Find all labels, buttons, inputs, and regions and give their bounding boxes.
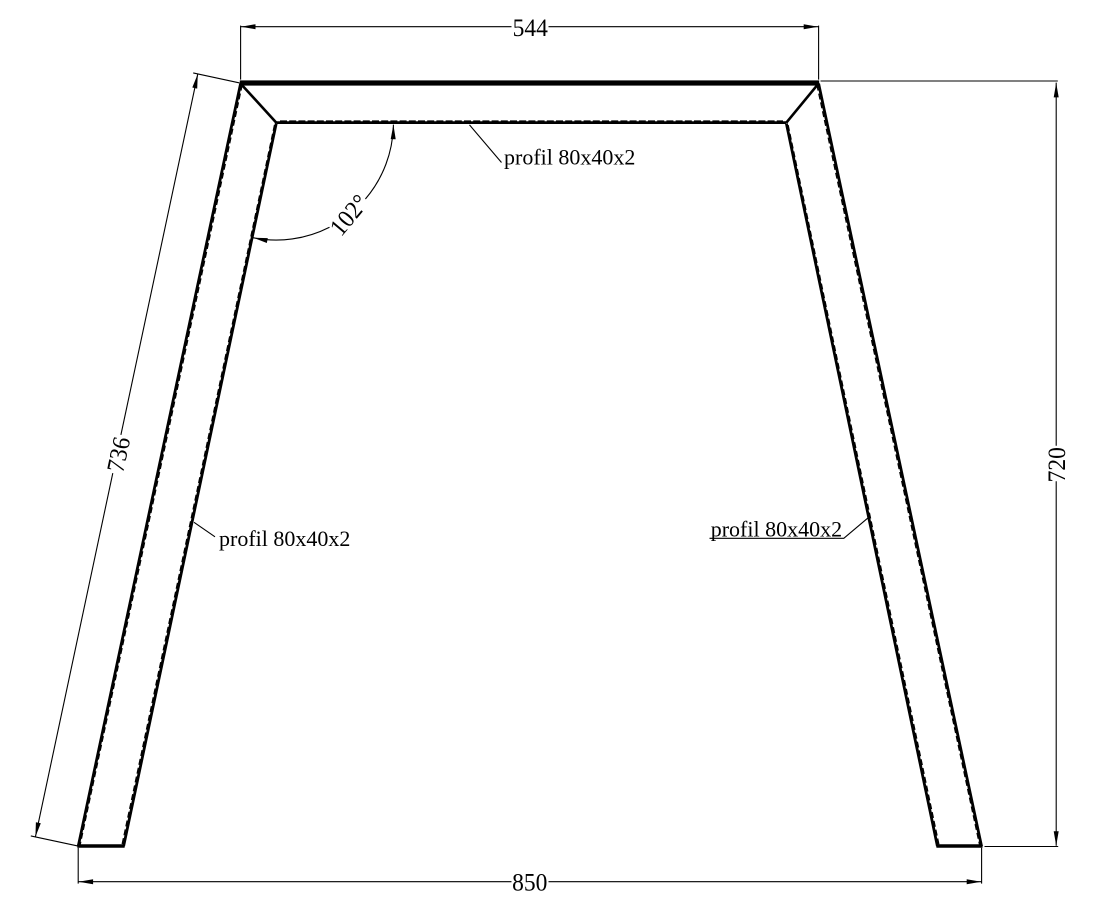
svg-text:850: 850 (512, 869, 547, 897)
svg-text:profil 80x40x2: profil 80x40x2 (219, 526, 350, 551)
svg-text:720: 720 (1043, 447, 1071, 482)
svg-text:profil 80x40x2: profil 80x40x2 (711, 516, 842, 541)
svg-text:544: 544 (513, 15, 548, 43)
svg-text:profil 80x40x2: profil 80x40x2 (504, 144, 635, 169)
